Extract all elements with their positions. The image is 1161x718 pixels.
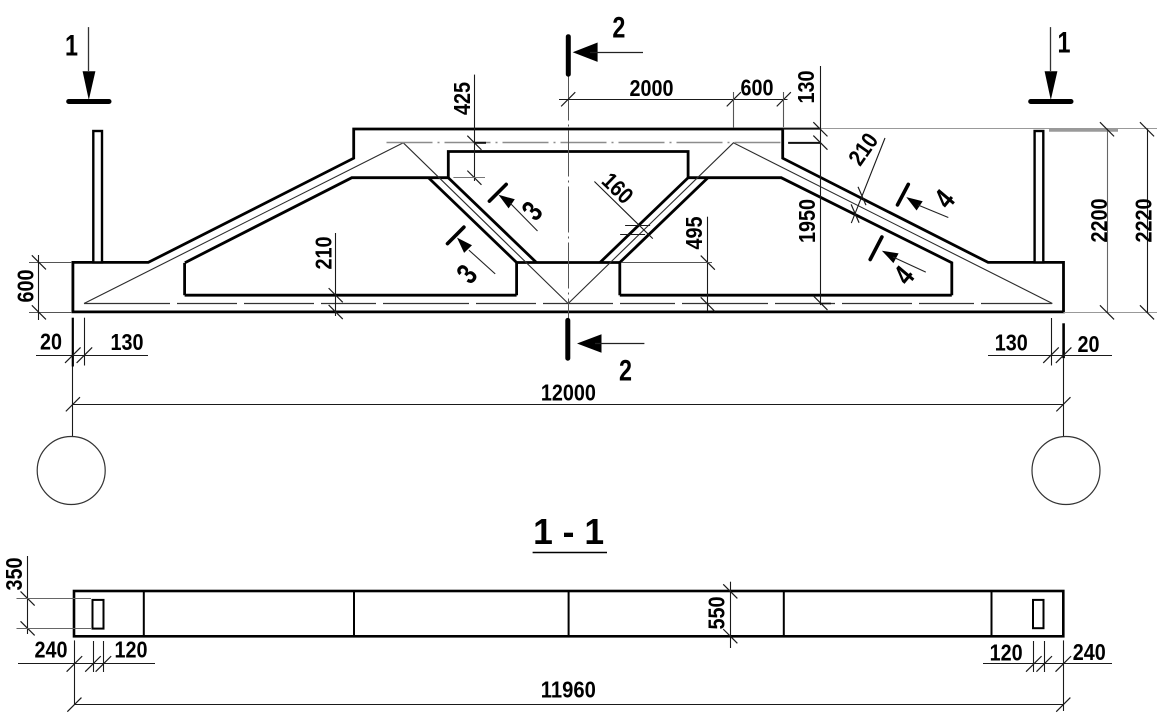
svg-text:2000: 2000	[630, 75, 674, 101]
svg-text:1950: 1950	[794, 199, 820, 243]
svg-text:240: 240	[35, 636, 68, 662]
svg-text:20: 20	[40, 328, 62, 354]
svg-text:2220: 2220	[1130, 199, 1156, 243]
svg-text:120: 120	[990, 640, 1023, 666]
svg-text:2200: 2200	[1086, 199, 1112, 243]
svg-text:130: 130	[995, 330, 1028, 356]
svg-text:1 - 1: 1 - 1	[533, 511, 604, 552]
svg-text:425: 425	[449, 82, 475, 115]
svg-text:20: 20	[1078, 331, 1100, 357]
svg-text:120: 120	[115, 636, 148, 662]
svg-text:1: 1	[65, 29, 78, 62]
svg-text:495: 495	[681, 216, 707, 249]
svg-text:11960: 11960	[541, 676, 596, 702]
svg-text:600: 600	[12, 270, 38, 303]
svg-text:12000: 12000	[541, 379, 596, 405]
svg-text:240: 240	[1073, 639, 1106, 665]
svg-text:130: 130	[793, 71, 819, 104]
svg-text:1: 1	[1058, 26, 1071, 59]
svg-text:350: 350	[1, 558, 27, 591]
svg-text:550: 550	[703, 597, 729, 630]
svg-text:130: 130	[111, 329, 144, 355]
svg-text:2: 2	[619, 355, 632, 388]
svg-text:210: 210	[310, 237, 336, 270]
svg-text:2: 2	[612, 11, 625, 44]
svg-text:600: 600	[741, 75, 774, 101]
